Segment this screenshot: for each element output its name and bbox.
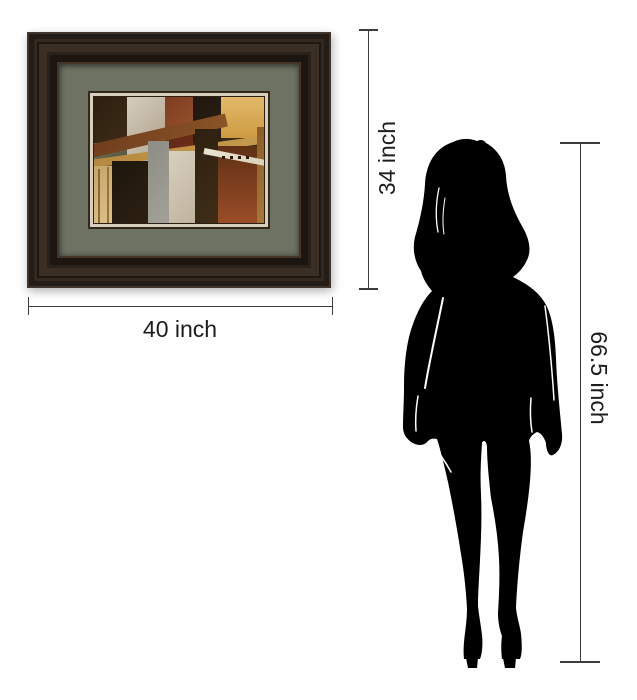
framed-artwork	[27, 32, 331, 288]
art-block	[148, 141, 169, 223]
art-block	[107, 167, 109, 223]
size-comparison-scene: 34 inch 40 inch 66.5 inch	[0, 0, 637, 700]
artwork-canvas	[94, 97, 264, 223]
art-block	[94, 166, 112, 223]
dimension-cap	[560, 142, 600, 144]
person-silhouette	[399, 138, 564, 669]
art-block	[222, 156, 225, 159]
art-block	[94, 97, 127, 143]
art-block	[246, 156, 249, 159]
woman-figure-shape	[403, 139, 562, 668]
dimension-cap	[359, 288, 378, 290]
art-block	[238, 156, 241, 159]
dimension-cap	[28, 297, 29, 315]
frame-width-dimension-line	[29, 306, 333, 307]
dimension-cap	[359, 29, 378, 31]
art-block	[257, 127, 264, 223]
dimension-cap	[560, 661, 600, 663]
art-mat	[59, 64, 299, 256]
art-block	[230, 156, 233, 159]
dimension-cap	[332, 297, 333, 315]
art-block	[98, 169, 100, 223]
art-block	[112, 161, 148, 223]
frame-height-dimension-line	[368, 30, 369, 290]
person-height-label: 66.5 inch	[587, 318, 611, 438]
frame-width-label: 40 inch	[130, 317, 230, 341]
frame-molding	[29, 34, 329, 286]
person-height-dimension-line	[580, 142, 581, 663]
frame-height-label: 34 inch	[375, 118, 399, 198]
art-block	[195, 129, 218, 223]
art-liner	[88, 91, 270, 229]
